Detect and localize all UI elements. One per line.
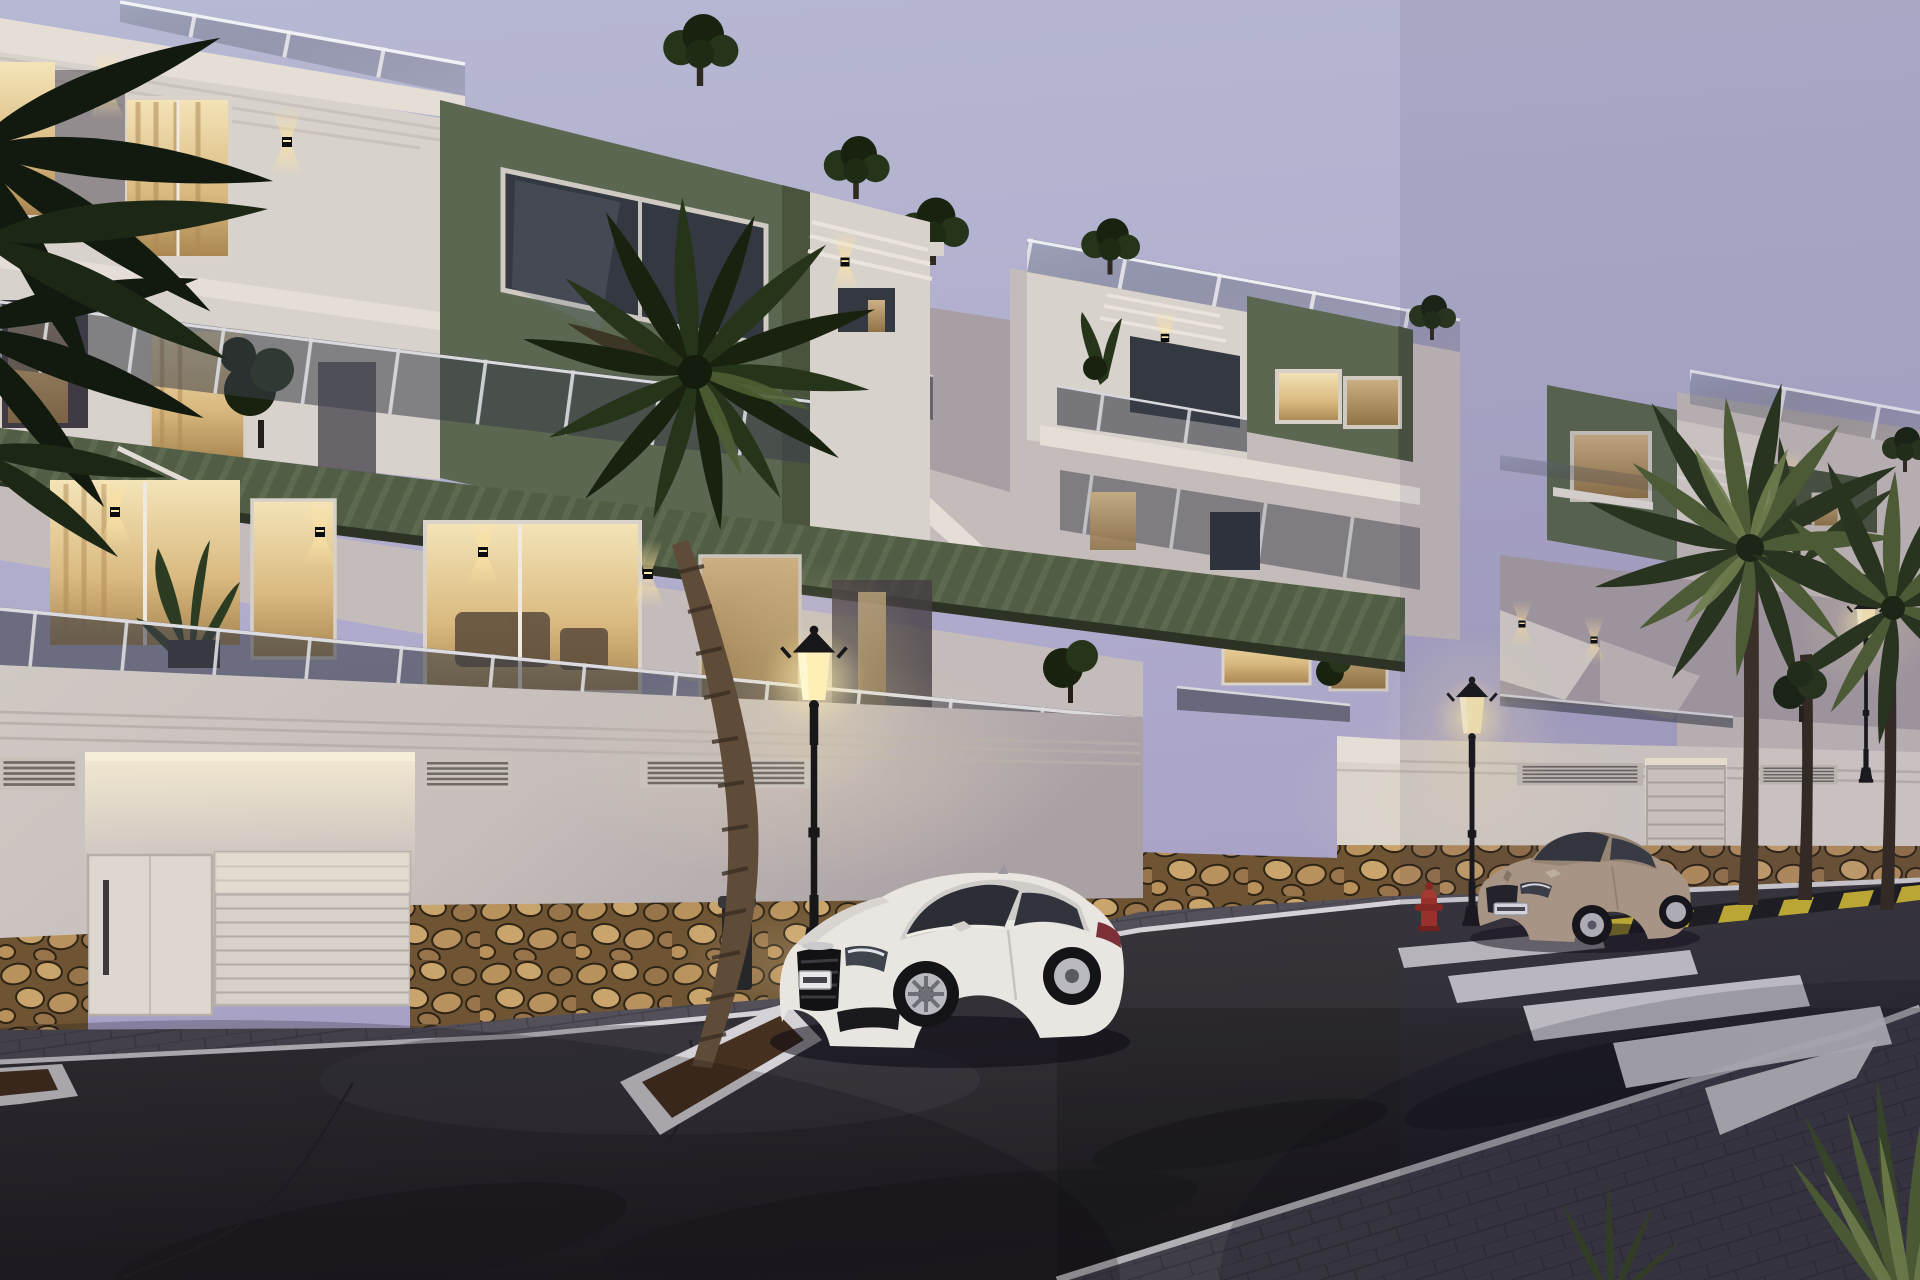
dark-window <box>838 288 895 332</box>
lit-window <box>1090 492 1136 550</box>
ventilation-grille <box>423 758 512 790</box>
pedestrian-door <box>88 855 212 1015</box>
lit-window <box>1277 371 1340 422</box>
ventilation-grille <box>0 757 78 790</box>
garage-door <box>215 852 410 1005</box>
lit-window <box>868 300 885 332</box>
lit-window <box>1345 378 1400 427</box>
dark-window <box>1210 512 1260 570</box>
dusk-street-render <box>0 0 1920 1280</box>
garage-strip-light <box>85 752 415 761</box>
rendered-scene <box>0 0 1920 1280</box>
